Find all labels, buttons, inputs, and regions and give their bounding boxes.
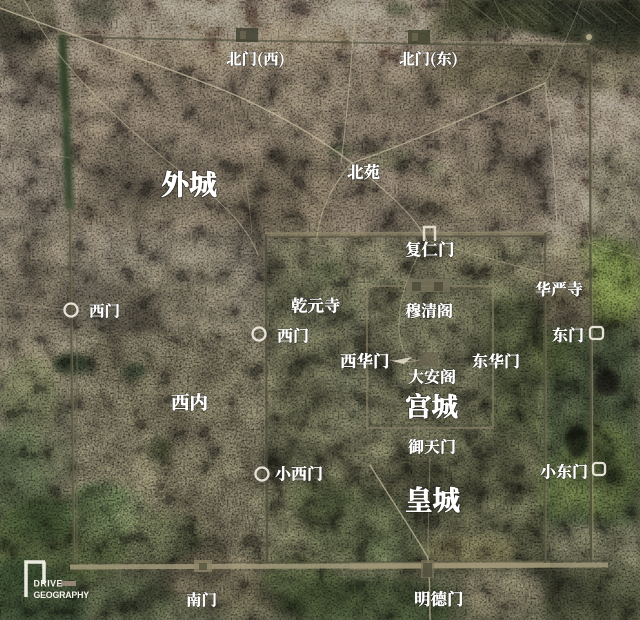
svg-text:DRIVE: DRIVE	[34, 579, 63, 589]
svg-text:GEOGRAPHY: GEOGRAPHY	[34, 590, 90, 600]
